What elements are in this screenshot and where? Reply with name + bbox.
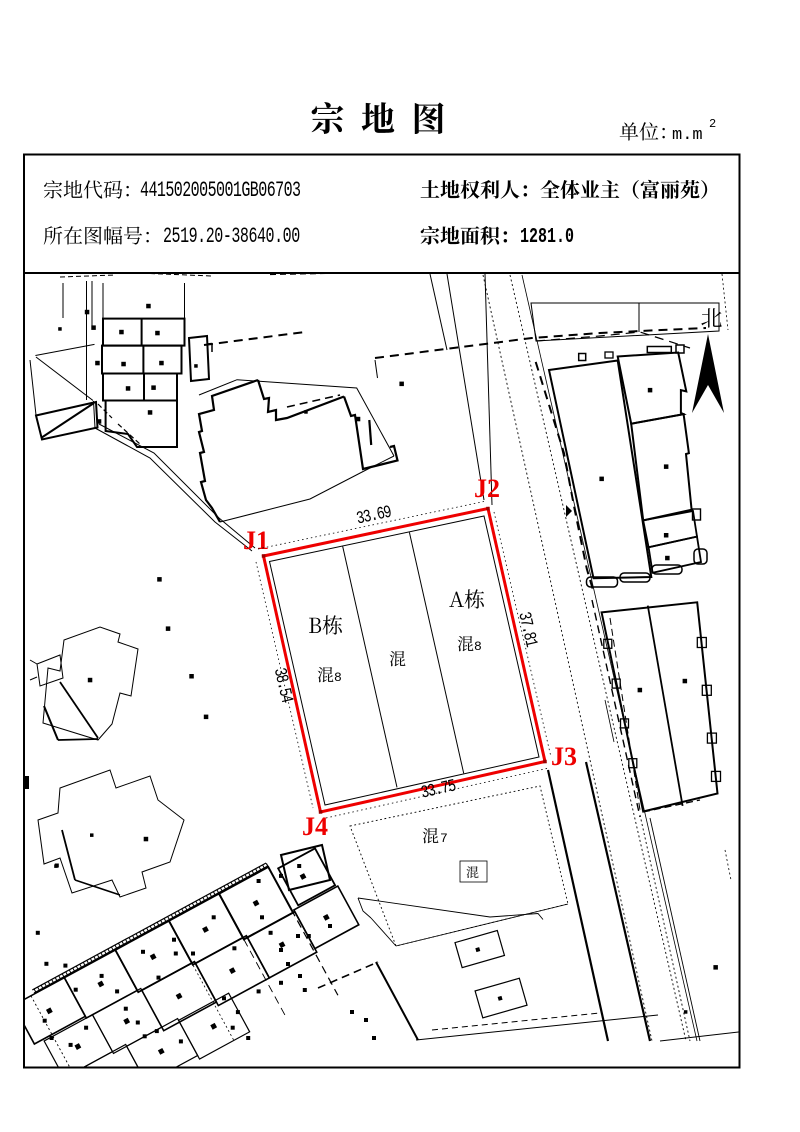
svg-text:2: 2 — [709, 117, 716, 131]
svg-text:2519.20-38640.00: 2519.20-38640.00 — [163, 223, 300, 249]
svg-text:1281.0: 1281.0 — [520, 226, 574, 249]
svg-text:J3: J3 — [551, 742, 577, 771]
svg-text:J4: J4 — [302, 812, 328, 841]
svg-text:8: 8 — [334, 670, 342, 685]
svg-text:m.m: m.m — [672, 126, 703, 145]
svg-text:8: 8 — [474, 639, 482, 654]
svg-text:441502005001GB06703: 441502005001GB06703 — [140, 177, 301, 203]
svg-text:J1: J1 — [243, 526, 269, 555]
svg-text:7: 7 — [440, 831, 448, 846]
svg-text:J2: J2 — [474, 474, 500, 503]
